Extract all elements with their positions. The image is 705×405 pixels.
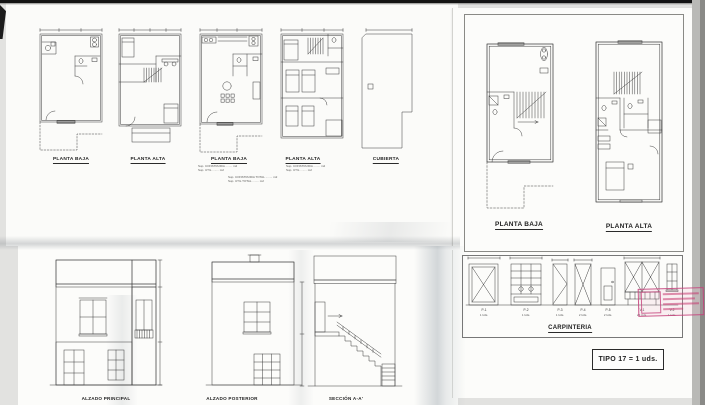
roof-plan-cubierta [352,24,422,154]
floor-plan-small-planta-alta-2 [278,24,348,154]
stamp-text-line [663,292,699,295]
type-note-text: TIPO 17 = 1 uds. [598,356,657,363]
floor-plan-small-planta-baja-2 [197,24,267,154]
carpentry-item-label-3: P-31 Uds. [556,308,564,317]
carpentry-item-label-5: P-52 Uds. [604,308,612,317]
plan-label-2: PLANTA ALTA [131,157,166,162]
floor-plan-small-planta-baja-1 [37,24,107,154]
scanned-architectural-plans: PLANTA BAJA PLANTA ALTA PLANTA BAJA PLAN… [0,0,705,405]
area-note-plan3: Sup. CONSTRUIDA ........ m2 Sup. UTIL ..… [198,165,237,173]
stamp-text-line [663,302,699,305]
carpentry-item-label-2: P-21 Uds. [522,308,530,317]
stamp-text-line [663,297,695,299]
plan-label-3: PLANTA BAJA [211,157,247,162]
floor-plan-small-planta-alta-1 [116,24,186,154]
type-note-box: TIPO 17 = 1 uds. [592,349,664,370]
area-note-plan4: Sup. CONSTRUIDA ........ m2 Sup. UTIL ..… [286,165,325,173]
carpentry-item-label-1: P-11 Uds. [480,308,488,317]
approval-stamp [638,287,705,317]
floor-plan-large-planta-baja [478,36,562,216]
plan-label-right-alta: PLANTA ALTA [606,223,652,230]
plan-label-right-baja: PLANTA BAJA [495,221,543,228]
stamp-text-line [663,308,683,310]
carpentry-item-label-4: P-42 Uds. [579,308,587,317]
elevation-label-posterior: ALZADO POSTERIOR [206,396,257,401]
elevation-label-principal: ALZADO PRINCIPAL [82,396,131,401]
area-note-totals: Sup. CONSTRUIDA TOTAL ........ m2 Sup. U… [228,176,277,184]
plan-label-5: CUBIERTA [373,157,399,162]
plan-label-1: PLANTA BAJA [53,157,89,162]
plan-label-4: PLANTA ALTA [286,157,321,162]
stamp-inner-box [641,291,662,314]
elevation-label-seccion: SECCIÓN A-A' [329,396,363,401]
floor-plan-large-planta-alta [590,36,674,216]
section-a-a [296,252,410,398]
elevation-alzado-principal [50,252,168,398]
elevation-alzado-posterior [200,252,310,398]
carpentry-title: CARPINTERIA [548,325,592,331]
